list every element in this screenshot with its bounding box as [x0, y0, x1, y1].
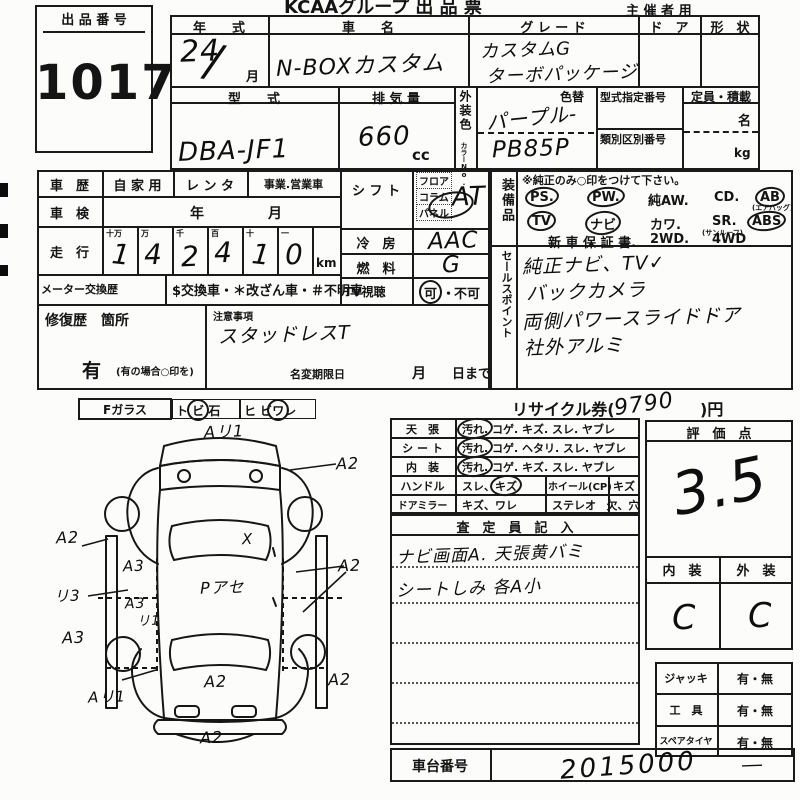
deadline-day: 日まで	[452, 363, 491, 382]
color-code: PB85P	[492, 135, 571, 164]
mileage-label: 走 行	[37, 242, 102, 261]
mileage-digit: 1	[250, 237, 272, 272]
disp-unit: cc	[412, 146, 430, 164]
fglass-label: Fガラス	[78, 401, 172, 418]
jack-value: 有・無	[717, 670, 793, 687]
equip-navi: ナビ	[590, 214, 616, 233]
deadline-label: 名変期限日	[290, 366, 345, 382]
tv-ok: 可	[424, 283, 437, 302]
diagram-label: A3	[62, 628, 86, 648]
shaken-month: 月	[268, 203, 282, 223]
name-header: 車 名	[268, 17, 468, 36]
recycle-amount: 9790	[613, 388, 676, 421]
sales-line2: バックカメラ	[526, 275, 647, 306]
shaken-label: 車 検	[37, 203, 102, 222]
sales-label: セールスポイント	[498, 250, 514, 384]
type-no-label: 型式指定番号	[600, 89, 666, 105]
fuel-value: G	[442, 252, 462, 279]
diagram-label: リ1	[137, 610, 161, 630]
chassis-dash: ―	[742, 752, 764, 777]
cond-stereo-val: 欠、穴	[606, 497, 640, 513]
meter-options: $交換車・＊改ざん車・＃不明車	[172, 280, 363, 299]
equip-cd: CD.	[714, 190, 739, 205]
diagram-label: A2	[338, 556, 362, 576]
equip-pw-circled: PW.	[592, 190, 620, 205]
scan-mark	[0, 265, 8, 276]
diagram-label: A3	[123, 557, 145, 576]
recycle-close: )円	[700, 396, 723, 420]
tools-label: 工 具	[655, 702, 717, 718]
shaken-year: 年	[190, 203, 204, 223]
door-header: ド ア	[638, 17, 700, 36]
tv-ok-circled: 可	[424, 283, 437, 302]
repair-note: (有の場合○印を)	[116, 363, 194, 378]
diagram-label: A2	[56, 528, 80, 548]
month-suffix: 月	[246, 66, 259, 85]
inspector-line2: シートしみ 各A小	[396, 571, 542, 601]
grade-header: グ レ ー ド	[468, 17, 638, 36]
class-no-label: 類別区別番号	[600, 131, 666, 147]
digit-head: 千	[176, 228, 184, 239]
cond-stereo-label: ステレオ	[552, 497, 596, 513]
caution-value: スタッドレスT	[218, 318, 351, 350]
diagram-label: A2	[204, 672, 228, 692]
cond-handle-val: スレ、キズ	[462, 478, 517, 494]
cond-handle-label: ハンドル	[390, 478, 455, 494]
mileage-digit: 0	[284, 238, 304, 272]
ac-label: 冷 房	[340, 233, 412, 252]
cond-roof-circled: 汚れ.	[462, 421, 488, 437]
mileage-digit: 4	[213, 236, 233, 270]
cond-interior-rest: コゲ. キズ. スレ. ヤブレ	[492, 461, 615, 474]
scan-mark	[0, 224, 8, 238]
diagram-label: Aリ1	[88, 685, 127, 707]
ac-value: AAC	[428, 227, 479, 255]
fglass-opt1: ト ビ 石	[176, 402, 220, 419]
fuel-label: 燃 料	[340, 258, 412, 277]
disp-header: 排 気 量	[338, 88, 454, 107]
cond-seat-circled: 汚れ.	[462, 440, 488, 456]
cond-wheel-label: ホイール(CP)	[548, 478, 612, 493]
equipment-note: ※純正のみ○印をつけて下さい。	[522, 172, 685, 188]
shift-value: AT	[451, 181, 486, 212]
lot-number: 1017	[35, 55, 153, 111]
equip-sr: SR.	[712, 214, 737, 229]
diagram-label: Pアセ	[200, 573, 245, 599]
mileage-digit: 2	[180, 240, 200, 274]
fglass-opt2: ヒ ビワレ	[244, 402, 296, 419]
cond-interior-opts: 汚れ. コゲ. キズ. スレ. ヤブレ	[462, 459, 615, 475]
history-opt-private: 自 家 用	[102, 175, 173, 194]
deadline-month: 月	[412, 363, 426, 383]
equip-2wd: 2WD.	[650, 232, 689, 247]
cond-interior-label: 内 装	[390, 459, 455, 475]
history-opt-rental: レ ン タ	[173, 175, 247, 194]
cond-mirror-val: キズ、ワレ	[462, 497, 517, 513]
equip-abs-circled: ABS	[752, 214, 781, 229]
equip-ps-circled: PS.	[530, 190, 554, 205]
repair-yes: 有	[82, 356, 101, 383]
diagram-label: A2	[328, 670, 352, 690]
diagram-label: X	[242, 530, 254, 548]
auction-sheet: KCAAグループ 出 品 票 主 催 者 用 出 品 番 号 1017 年 式 …	[0, 0, 800, 800]
capacity-unit2: kg	[734, 146, 751, 160]
jack-label: ジャッキ	[655, 670, 717, 686]
disp-value: 660	[357, 121, 411, 153]
shift-opt-floor: フロア	[416, 172, 452, 189]
exterior-value: C	[747, 596, 773, 637]
mileage-unit: km	[316, 256, 336, 270]
repair-label: 修復歴 箇所	[45, 310, 129, 330]
spare-label: スペアタイヤ	[655, 734, 717, 747]
cond-wheel-val: キズ	[608, 478, 640, 494]
diagram-label: リ3	[54, 585, 81, 607]
diagram-label: A2	[336, 454, 360, 474]
color-no-label: カラーNo.	[459, 142, 469, 168]
exterior-header: 外 装	[719, 560, 793, 579]
cond-seat-opts: 汚れ. コゲ. ヘタリ. スレ. ヤブレ	[462, 440, 626, 456]
fglass-o2-circled: ワ	[272, 402, 284, 419]
chassis-label: 車台番号	[390, 756, 490, 776]
diagram-label: A2	[200, 728, 224, 748]
grade-line2: ターボパッケージ	[486, 57, 638, 88]
score-title: 評 価 点	[645, 423, 793, 442]
vehicle-name-value: N-BOXカスタム	[275, 45, 444, 83]
meter-label: メーター交換歴	[41, 281, 118, 297]
equip-ps: PS.	[530, 190, 554, 205]
tools-value: 有・無	[717, 702, 793, 719]
equip-aw: 純AW.	[648, 190, 689, 209]
shift-label: シ フ ト	[340, 180, 412, 199]
cond-seat-label: シ ー ト	[390, 440, 455, 456]
model-header: 型 式	[170, 88, 338, 107]
capacity-unit1: 名	[738, 110, 751, 129]
color-header: 外装色	[457, 90, 474, 146]
interior-value: C	[671, 598, 697, 639]
tv-label: TV視聴	[344, 283, 385, 300]
cond-mirror-label: ドアミラー	[390, 497, 455, 512]
cond-roof-opts: 汚れ. コゲ. キズ. スレ. ヤブレ	[462, 421, 615, 437]
capacity-header: 定員・積載	[682, 88, 760, 105]
shape-header: 形 状	[700, 17, 760, 36]
mileage-digit: 1	[110, 237, 132, 272]
model-value: DBA-JF1	[178, 134, 290, 168]
tv-ng: 不可	[454, 283, 480, 302]
history-label: 車 歴	[37, 175, 102, 194]
cond-handle-circled: キズ	[495, 478, 517, 494]
equip-pw: PW.	[592, 190, 620, 205]
cond-roof-rest: コゲ. キズ. スレ. ヤブレ	[492, 423, 615, 436]
lot-label: 出 品 番 号	[43, 9, 145, 33]
equip-tv-circled: TV	[532, 214, 551, 229]
history-opt-business: 事業.営業車	[247, 176, 340, 192]
scan-mark	[0, 183, 8, 197]
equip-kawa: カワ.	[650, 214, 681, 233]
cond-roof-label: 天 張	[390, 421, 455, 437]
equip-abs: ABS	[752, 214, 781, 229]
cond-interior-circled: 汚れ.	[462, 459, 488, 475]
equip-tv: TV	[532, 214, 551, 229]
mileage-digit: 4	[143, 238, 163, 272]
recycle-label: リサイクル券(	[512, 396, 615, 420]
car-diagram	[60, 420, 390, 792]
inspector-title: 査 定 員 記 入	[390, 517, 640, 536]
fglass-o1-circled: ビ	[192, 402, 204, 419]
interior-header: 内 装	[645, 560, 719, 579]
equip-4wd: 4WD	[712, 232, 746, 247]
diagram-label: Aリ1	[204, 417, 245, 442]
fglass-o1-post: 石	[208, 404, 220, 418]
equipment-label: 装備品	[497, 178, 516, 240]
sales-line4: 社外アルミ	[524, 330, 625, 360]
cond-seat-rest: コゲ. ヘタリ. スレ. ヤブレ	[492, 442, 626, 455]
equip-navi-circled: ナビ	[590, 214, 616, 233]
